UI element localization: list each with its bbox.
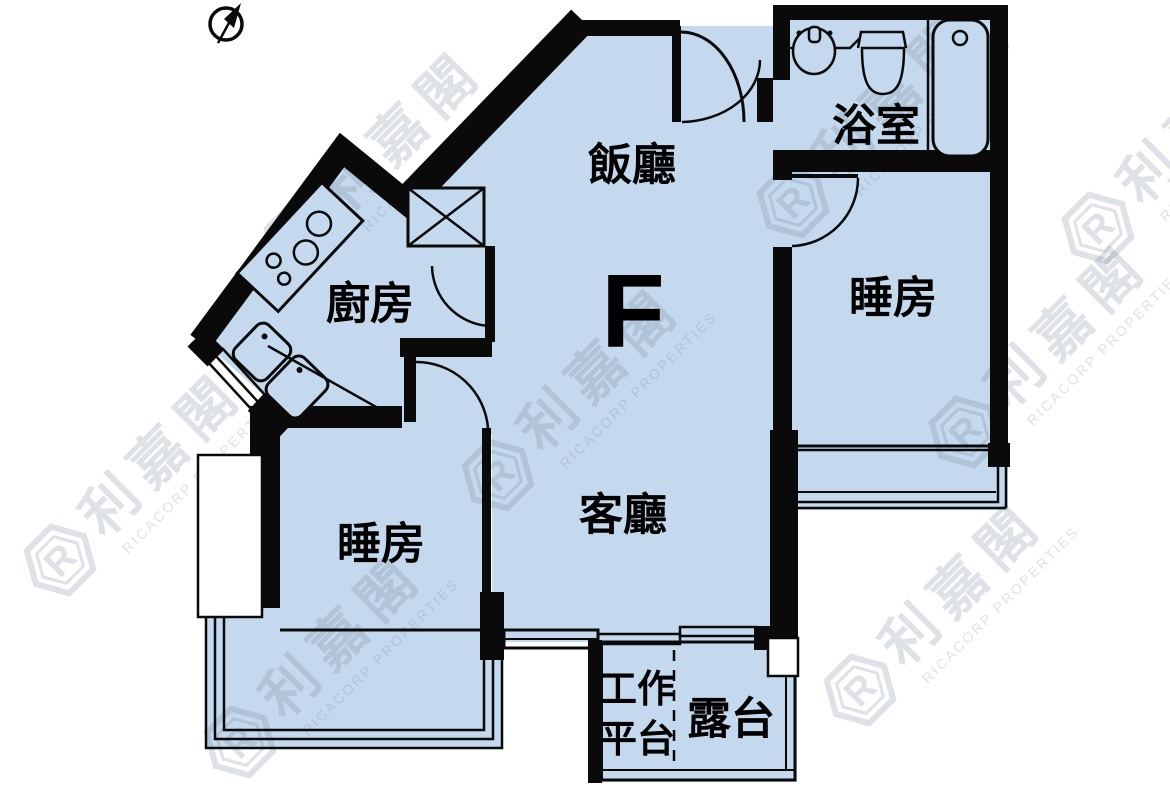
wash-basin-icon [793,27,835,74]
wall-segment [485,246,495,342]
basin-knob [828,31,833,36]
living-room-label: 客廳 [579,491,667,540]
north-arrow-icon [210,3,242,43]
basin-tap [809,27,820,42]
work-platform-label-line2: 平台 [599,719,675,761]
wall-segment [773,5,790,80]
wall-segment [770,430,798,648]
wall-segment [250,406,280,458]
watermark [811,476,1082,747]
ac-platform-left [198,455,262,617]
wall-segment [480,592,504,660]
wall-segment [773,5,1008,20]
wall-segment [990,5,1008,462]
wall-segment [575,20,680,36]
basin-knob [797,31,802,36]
wall-segment [773,150,792,180]
wall-segment [773,247,792,432]
watermark [1049,14,1170,285]
floor-plan-svg: R 利嘉閣 RICACORP PROPERTIES [0,0,1170,785]
work-platform-label-line1: 工作 [599,669,675,711]
toilet-tank [858,32,906,48]
entrance-door-leaf [672,26,681,122]
bedroom-right-label: 睡房 [849,274,937,323]
toilet-bowl [862,48,904,94]
bedroom-left-label: 睡房 [337,520,425,569]
unit-label: F [601,254,665,370]
bedroom-left-door-leaf [404,357,416,422]
wall-segment [588,640,602,783]
ac-platform-balcony [768,638,798,676]
dining-room-label: 飯廳 [588,141,676,190]
balcony-label: 露台 [687,695,775,744]
kitchen-label: 廚房 [326,279,414,329]
bathtub-body [933,20,988,156]
wall-segment [196,338,216,358]
bathroom-label: 浴室 [832,101,920,151]
floor-plan-image: R 利嘉閣 RICACORP PROPERTIES [0,0,1170,785]
bathtub-icon [933,20,988,156]
wall-segment [757,78,773,122]
wall-segment [400,338,492,357]
duct-shaft-icon [408,188,484,246]
